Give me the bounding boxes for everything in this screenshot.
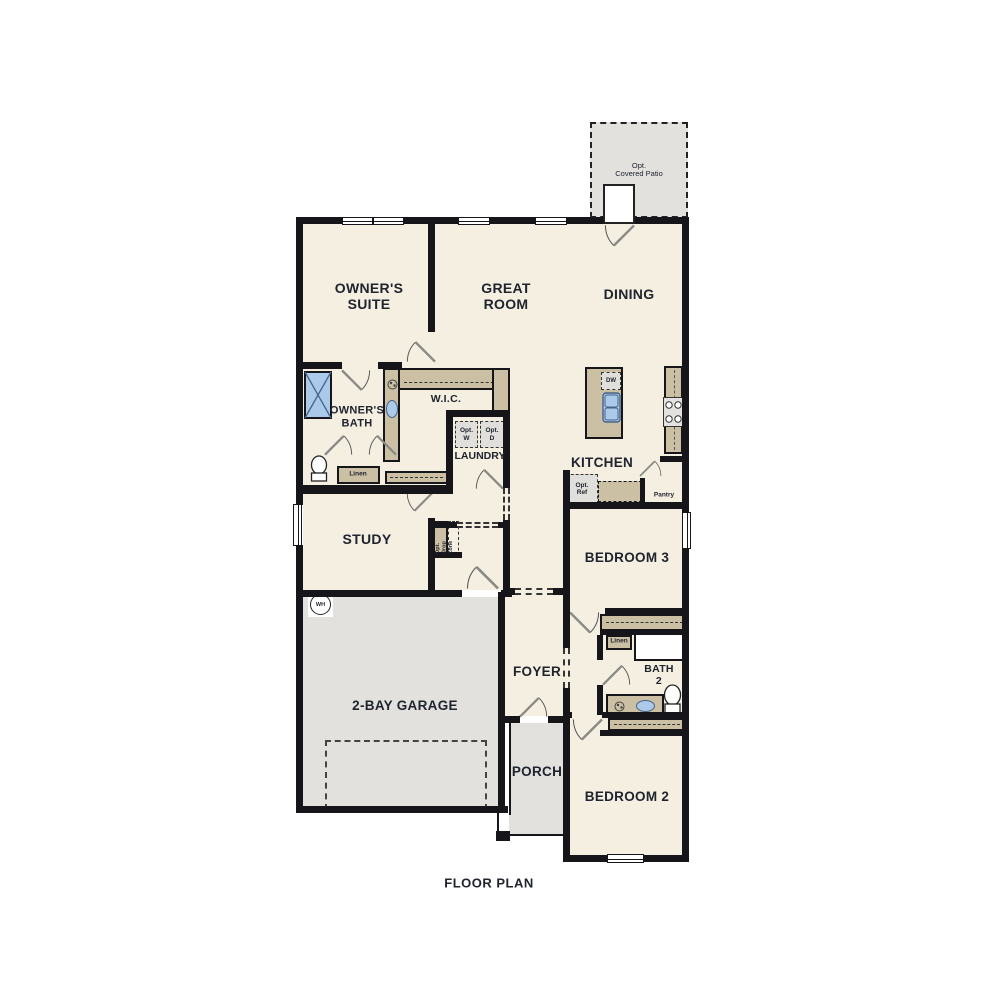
dishwasher-label: DW — [606, 378, 616, 385]
pantry-label: Pantry — [654, 493, 674, 500]
room-label-great-room: GREAT ROOM — [481, 280, 530, 312]
garage-door-outline — [325, 740, 487, 810]
toilet — [309, 455, 329, 482]
wall — [446, 410, 510, 417]
door-swing-study — [406, 492, 432, 518]
wall — [563, 470, 570, 506]
cased-opening — [515, 588, 553, 595]
wall — [428, 518, 435, 597]
window — [458, 217, 490, 225]
wall — [600, 730, 689, 736]
wall — [505, 716, 520, 723]
bathtub-surround — [634, 633, 686, 661]
wall — [563, 502, 689, 509]
drop-zone-label: Opt. Drop Zone — [435, 524, 455, 554]
door-swing-bedroom3 — [570, 611, 600, 641]
door-swing-bedroom2 — [572, 718, 602, 748]
door-swing-front — [520, 690, 548, 718]
patio-door — [603, 184, 635, 224]
floor-plan-canvas: Opt. W Opt. D DW Opt. Ref — [0, 0, 1000, 1000]
room-label-owners-suite: OWNER'S SUITE — [335, 280, 403, 312]
window — [373, 217, 404, 225]
window — [535, 217, 567, 225]
faucet-icon — [387, 377, 398, 388]
window — [342, 217, 373, 225]
linen-label: Linen — [349, 472, 366, 479]
room-label-kitchen: KITCHEN — [571, 455, 633, 471]
room-label-dining: DINING — [604, 286, 655, 302]
optional-dryer: Opt. D — [480, 421, 504, 448]
room-label-bedroom3: BEDROOM 3 — [585, 550, 669, 566]
bedroom3-closet — [600, 614, 689, 631]
cooktop — [663, 397, 684, 427]
dishwasher: DW — [601, 372, 621, 390]
wall — [296, 485, 453, 494]
wall — [378, 362, 402, 369]
room-label-study: STUDY — [343, 531, 392, 547]
door-swing-laundry — [475, 462, 503, 490]
bathroom-sink — [636, 700, 655, 712]
room-label-owners-bath: OWNER'S BATH — [330, 404, 384, 429]
wall — [640, 478, 645, 504]
room-label-laundry: LAUNDRY — [455, 450, 506, 462]
door-swing-pantry — [640, 454, 662, 478]
toilet — [662, 684, 683, 714]
wall — [602, 712, 689, 718]
wall — [597, 685, 603, 715]
wall — [597, 635, 603, 660]
water-heater-label: WH — [316, 602, 325, 608]
door-swing-patio — [604, 224, 634, 254]
door-swing-bath2 — [603, 658, 631, 686]
wall — [643, 855, 689, 862]
wall — [503, 520, 510, 597]
door-swing-owners-bath — [342, 369, 371, 398]
cased-opening — [457, 522, 498, 528]
wall — [563, 509, 570, 608]
shower — [304, 371, 332, 419]
wall — [296, 806, 508, 813]
porch-edge — [510, 834, 563, 836]
door-swing-garage — [462, 558, 502, 590]
wall — [605, 608, 689, 615]
wall — [660, 456, 683, 462]
faucet-icon — [614, 699, 625, 710]
door-swing-owners-suite — [406, 334, 435, 363]
patio-label: Opt. Covered Patio — [615, 162, 663, 178]
wall — [296, 545, 303, 813]
kitchen-counter — [598, 481, 642, 502]
wall — [446, 410, 453, 492]
cased-opening — [503, 488, 510, 520]
wall — [428, 224, 435, 332]
door-swing-bath-hall — [325, 428, 353, 456]
cased-opening — [563, 648, 570, 688]
wall — [296, 590, 462, 597]
room-label-porch: PORCH — [512, 764, 562, 780]
wall — [563, 712, 572, 718]
wall — [568, 855, 608, 862]
linen-label: Linen — [610, 639, 627, 646]
window — [682, 512, 691, 549]
door-swing-bath-hall — [368, 428, 396, 456]
wall — [296, 362, 342, 369]
optional-fridge-label: Opt. Ref — [576, 482, 589, 496]
foyer-area — [503, 490, 568, 716]
page-title: FLOOR PLAN — [444, 876, 534, 891]
window — [293, 504, 302, 546]
porch-edge — [509, 723, 511, 815]
wall — [682, 548, 689, 862]
optional-washer: Opt. W — [455, 421, 478, 448]
optional-fridge: Opt. Ref — [566, 474, 598, 504]
optional-dryer-label: Opt. D — [486, 427, 499, 441]
wall — [682, 217, 689, 513]
room-label-foyer: FOYER — [513, 664, 561, 680]
room-label-garage: 2-BAY GARAGE — [352, 698, 458, 714]
room-label-bath2: BATH 2 — [644, 663, 674, 687]
optional-washer-label: Opt. W — [460, 427, 473, 441]
room-label-bedroom2: BEDROOM 2 — [585, 789, 669, 805]
room-label-wic: W.I.C. — [431, 393, 461, 405]
wall — [563, 608, 570, 648]
wic-shelving — [385, 471, 448, 484]
kitchen-sink — [602, 392, 621, 423]
wall — [635, 217, 689, 224]
bathroom-sink — [386, 400, 398, 418]
window — [607, 854, 644, 863]
wall — [563, 718, 570, 862]
wall — [296, 217, 303, 505]
wall — [600, 630, 689, 635]
porch-edge — [497, 813, 499, 833]
wall — [498, 592, 505, 813]
porch-step — [496, 831, 510, 841]
